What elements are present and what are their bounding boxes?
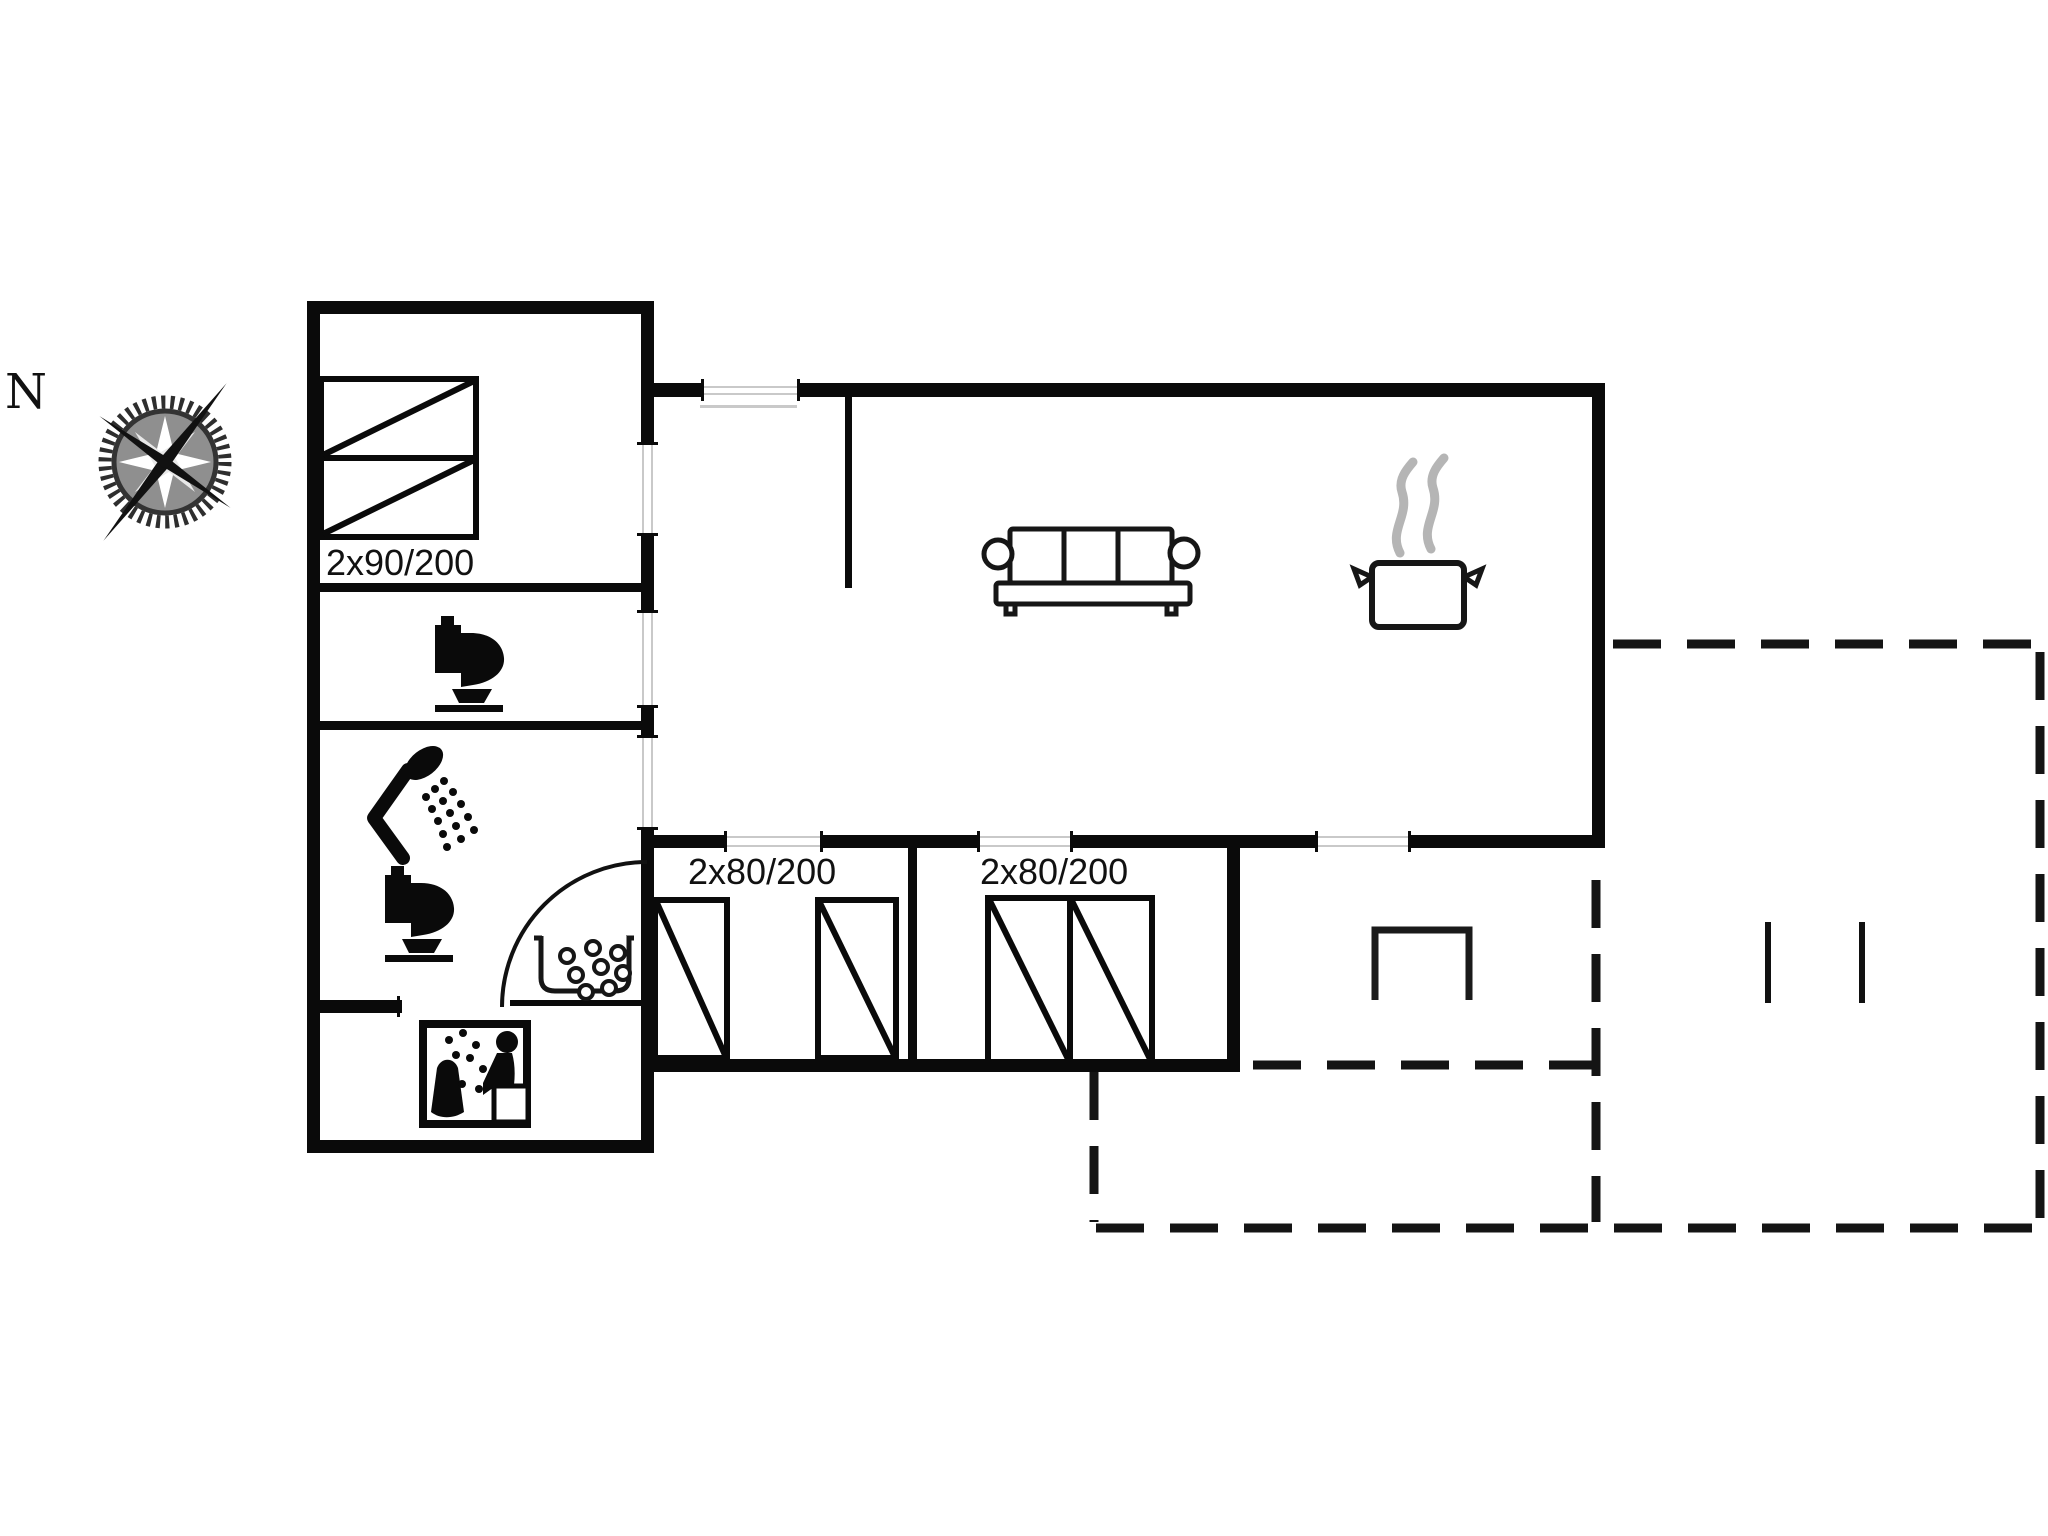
sofa-icon	[984, 529, 1198, 614]
toilet-icon-2	[385, 866, 454, 962]
door-jambs	[397, 379, 1411, 1017]
master-bed-size-label: 2x90/200	[326, 542, 474, 583]
master-bed-icon	[321, 379, 476, 537]
floor-plan-canvas: N	[0, 0, 2048, 1536]
shower-icon	[374, 739, 478, 858]
terrace-table-icon	[1375, 930, 1469, 1000]
toilet-icon	[435, 616, 504, 712]
thresholds	[642, 386, 1408, 847]
steam-icon	[1396, 458, 1444, 553]
cooking-pot-icon	[1354, 458, 1482, 627]
compass-rose-icon	[97, 380, 234, 545]
north-label: N	[5, 364, 47, 420]
bedroom1-beds-icon	[655, 900, 896, 1058]
bedroom1-bed-size-label: 2x80/200	[688, 851, 836, 892]
bedroom2-bed-size-label: 2x80/200	[980, 851, 1128, 892]
terrace-bench-icon	[1765, 922, 1865, 1003]
bedroom2-beds-icon	[988, 898, 1152, 1062]
washbasin-icon	[534, 936, 634, 999]
sauna-icon	[423, 1024, 528, 1124]
